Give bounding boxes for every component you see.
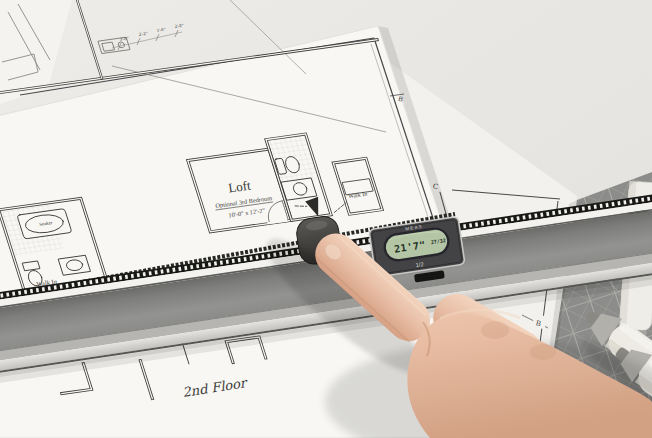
- display-scale-label: 1/2: [415, 261, 424, 268]
- loft-label: Loft: [227, 178, 252, 196]
- photo-canvas: C D A B: [0, 0, 652, 438]
- plan-vanity-right: [281, 178, 316, 200]
- photo-architect-desk: C D A B: [0, 0, 652, 438]
- plan-toilet-left: [23, 261, 40, 271]
